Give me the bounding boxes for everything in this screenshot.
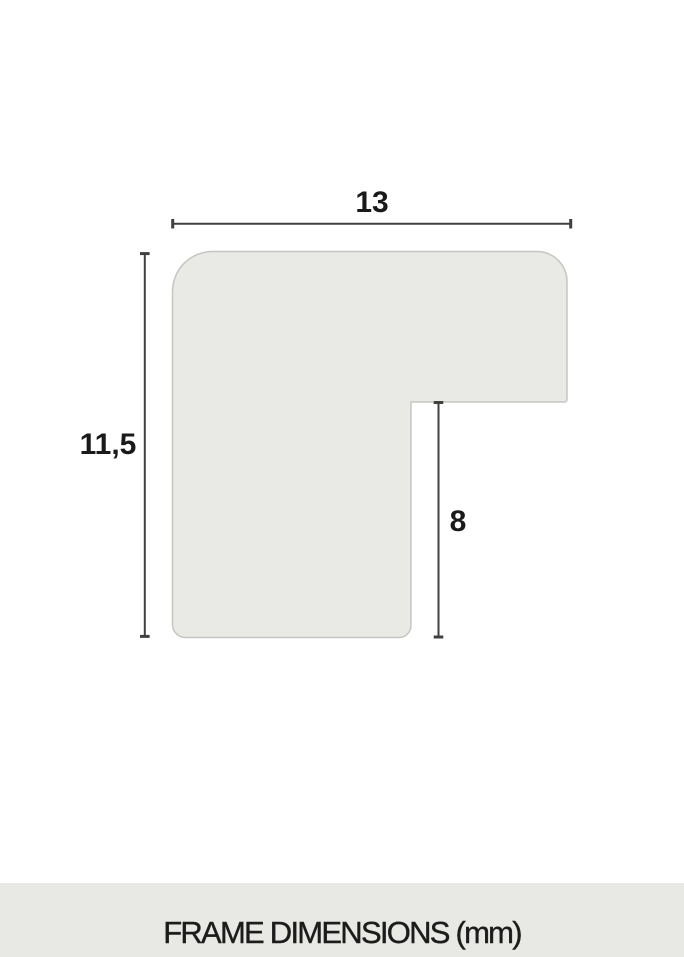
- svg-text:8: 8: [450, 505, 467, 538]
- svg-text:13: 13: [355, 186, 388, 219]
- svg-text:11,5: 11,5: [80, 428, 137, 461]
